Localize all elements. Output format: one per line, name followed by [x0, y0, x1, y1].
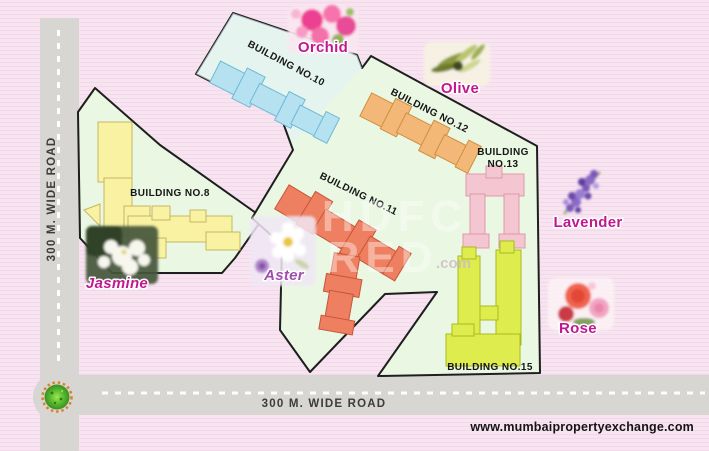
site-layout-map: BUILDING NO.10 BUILDING NO.12 BUILDING N…: [0, 0, 709, 451]
aster-label: Aster: [263, 267, 305, 284]
building-8-label: BUILDING NO.8: [130, 188, 210, 199]
watermark: HDFC RED .com: [322, 192, 471, 282]
building-13-label-line1: BUILDING: [477, 147, 529, 158]
road-label-vertical: 300 M. WIDE ROAD: [46, 137, 58, 262]
rose-label: Rose: [559, 320, 597, 337]
lavender-label: Lavender: [553, 214, 622, 231]
lavender-flower-image: [563, 170, 600, 214]
building-13-label-line2: NO.13: [488, 159, 519, 170]
orchid-label: Orchid: [298, 39, 348, 56]
watermark-com: .com: [436, 255, 471, 272]
olive-label: Olive: [441, 80, 479, 97]
building-15-label: BUILDING NO.15: [447, 362, 533, 373]
road-label-horizontal: 300 M. WIDE ROAD: [262, 398, 387, 410]
jasmine-label: Jasmine: [86, 275, 148, 292]
footer-website[interactable]: www.mumbaipropertyexchange.com: [469, 420, 694, 434]
watermark-line2: RED: [328, 233, 439, 282]
